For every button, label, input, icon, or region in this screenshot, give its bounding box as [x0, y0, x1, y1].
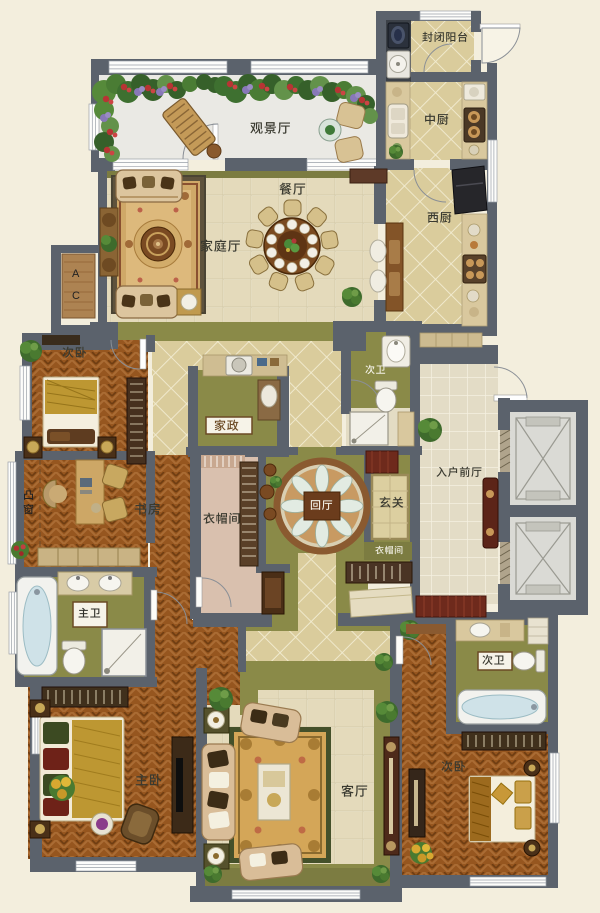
svg-text:C: C: [72, 290, 80, 302]
svg-text:A: A: [72, 268, 80, 280]
